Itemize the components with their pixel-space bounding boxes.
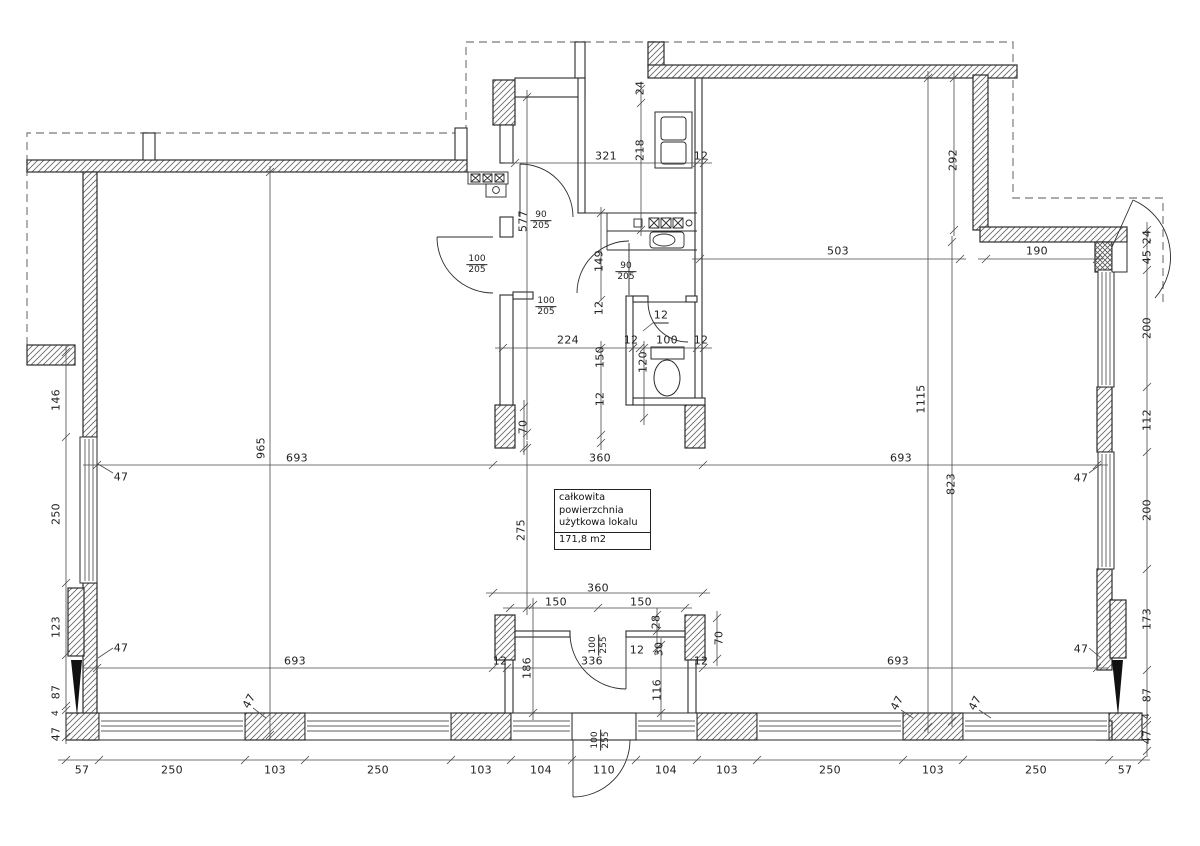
fixture-meter-box	[468, 172, 508, 197]
dashed-outline	[27, 42, 1163, 345]
dimension-line	[657, 638, 665, 720]
dimension-line	[692, 255, 966, 263]
dimension-line	[523, 441, 531, 615]
fixture-hob	[634, 218, 692, 228]
dimension-line	[640, 341, 648, 425]
dimension-line	[62, 345, 70, 744]
dimension-line	[1143, 222, 1151, 757]
fixture-fridge	[655, 112, 692, 168]
dimension-line	[978, 255, 1103, 263]
floor-plan-page: 3212182412292503190244520011220017387447…	[0, 0, 1200, 846]
dimension-line	[950, 71, 958, 236]
area-box-value: 171,8 m2	[555, 533, 650, 549]
fixture-toilet	[651, 347, 684, 396]
dimension-line	[597, 341, 605, 450]
dimension-line	[266, 166, 274, 740]
dimension-line	[597, 207, 605, 304]
area-box-line2: użytkowa lokalu	[559, 517, 638, 528]
floor-plan-svg	[0, 0, 1200, 846]
dimension-line	[83, 664, 1108, 672]
dimension-line	[58, 756, 1150, 764]
dimension-line	[948, 236, 956, 727]
dimension-line	[713, 611, 721, 666]
area-box: całkowita powierzchnia użytkowa lokalu 1…	[554, 489, 651, 550]
dimension-line	[523, 90, 531, 440]
dimension-line	[529, 598, 537, 720]
wall-pillar-crosshatch	[1095, 242, 1112, 272]
dimension-line	[503, 604, 692, 612]
dimension-line	[486, 589, 710, 597]
area-box-line1: całkowita powierzchnia	[559, 492, 624, 516]
dimension-line	[83, 461, 1108, 469]
fixture-sink	[650, 232, 684, 248]
walls-thin	[143, 42, 705, 740]
dimension-line	[924, 71, 932, 733]
